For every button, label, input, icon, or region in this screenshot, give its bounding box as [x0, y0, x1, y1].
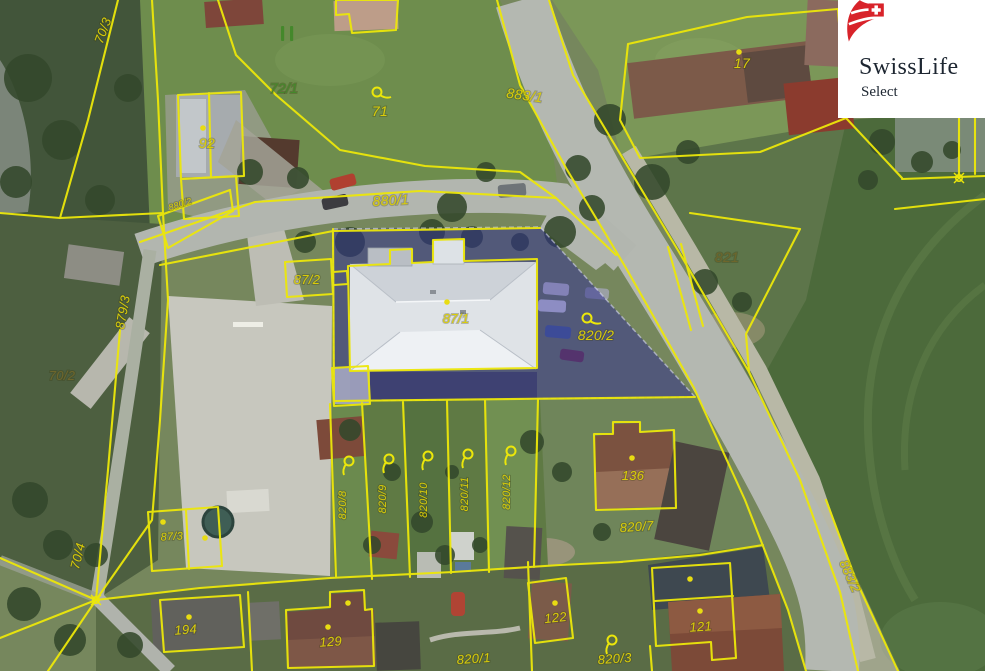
parcel-label-820-12: 820/12 [501, 474, 513, 509]
parcel-point-dot [629, 455, 635, 461]
swisslife-logo-icon [838, 0, 886, 44]
parcel-point-dot [687, 576, 693, 582]
parcel-label-87-2: 87/2 [294, 272, 321, 287]
parcel-label-194: 194 [174, 621, 198, 638]
cadastral-aerial-map: 70/3879/39272/171883/1880/1880/287/287/1… [0, 0, 985, 671]
parcel-label-880-1: 880/1 [372, 191, 409, 209]
logo-brand-text: SwissLife [859, 54, 959, 81]
parcel-label-129: 129 [319, 633, 343, 650]
parcel-label-122: 122 [544, 609, 569, 626]
parcel-label-136: 136 [622, 468, 645, 483]
parcel-label-121: 121 [689, 618, 713, 635]
parcel-point-dot [444, 299, 450, 305]
parcel-point-dot [200, 125, 206, 131]
parcel-label-72-1: 72/1 [270, 80, 298, 96]
parcel-label-820-8: 820/8 [337, 490, 349, 520]
parcel-label-70-2: 70/2 [49, 368, 76, 383]
parcel-label-821: 821 [715, 249, 739, 265]
parcel-point-dot [160, 519, 166, 525]
parcel-label-820-11: 820/11 [459, 477, 471, 512]
parcel-label-820-1: 820/1 [456, 650, 491, 667]
parcel-label-820-2: 820/2 [578, 327, 615, 343]
meadow-ii-mark [290, 26, 293, 41]
parcel-label-820-10: 820/10 [418, 482, 430, 518]
boundary-junction-mark [954, 173, 964, 183]
parcel-point-dot [325, 624, 331, 630]
parcel-label-87-1: 87/1 [443, 311, 470, 326]
boundary-junction-mark [91, 595, 101, 605]
meadow-ii-mark [281, 26, 284, 41]
parcel-label-87-3: 87/3 [160, 530, 184, 543]
swisslife-logo-card: SwissLife Select [838, 0, 985, 118]
parcel-point-dot [186, 614, 192, 620]
parcel-label-71: 71 [372, 103, 388, 119]
parcel-point-dot [697, 608, 703, 614]
logo-sub-text: Select [861, 84, 898, 101]
parcel-point-dot [202, 535, 208, 541]
parcel-label-820-9: 820/9 [377, 484, 389, 513]
parcel-label-92: 92 [199, 135, 215, 151]
parcel-point-dot [552, 600, 558, 606]
parcel-point-dot [736, 49, 742, 55]
parcel-point-dot [345, 600, 351, 606]
parcel-label-820-7: 820/7 [619, 518, 654, 535]
parcel-label-820-3: 820/3 [597, 650, 632, 667]
parcel-label-17: 17 [734, 55, 751, 71]
